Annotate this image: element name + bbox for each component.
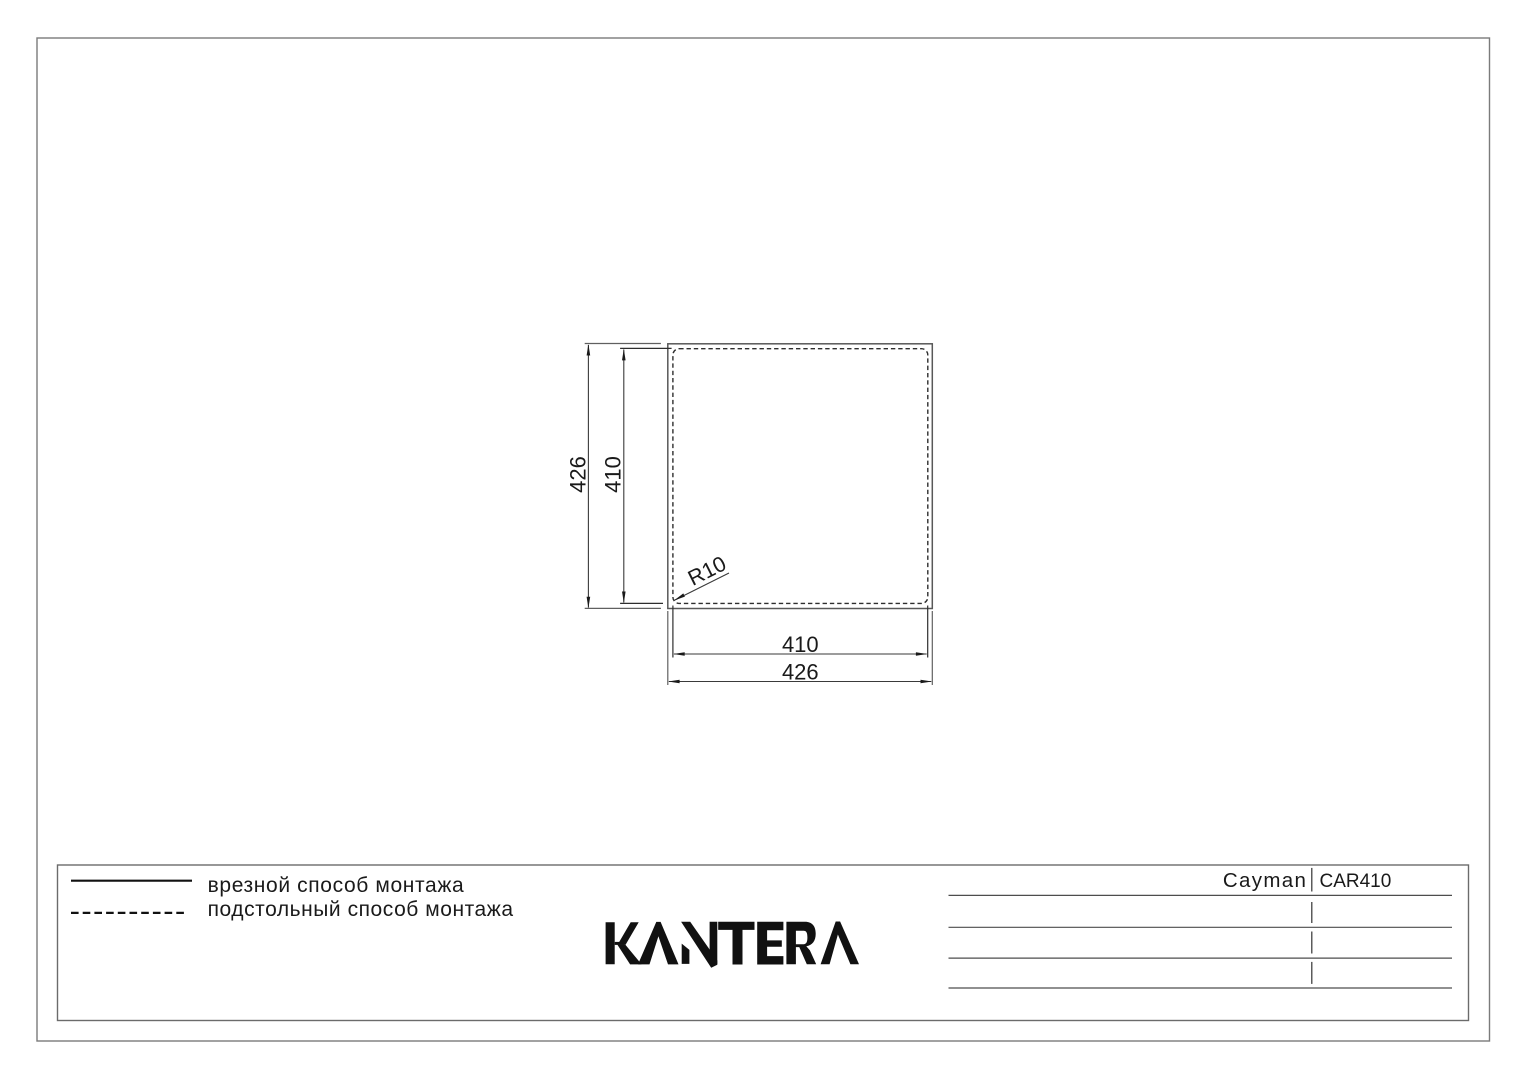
svg-text:410: 410 (782, 632, 819, 657)
svg-text:CAR410: CAR410 (1320, 871, 1392, 892)
svg-text:410: 410 (600, 456, 625, 493)
svg-text:Cayman: Cayman (1223, 869, 1307, 892)
svg-text:426: 426 (565, 456, 590, 493)
svg-text:врезной способ монтажа: врезной способ монтажа (208, 874, 465, 897)
svg-text:подстольный способ монтажа: подстольный способ монтажа (208, 898, 514, 921)
svg-text:426: 426 (782, 659, 819, 684)
